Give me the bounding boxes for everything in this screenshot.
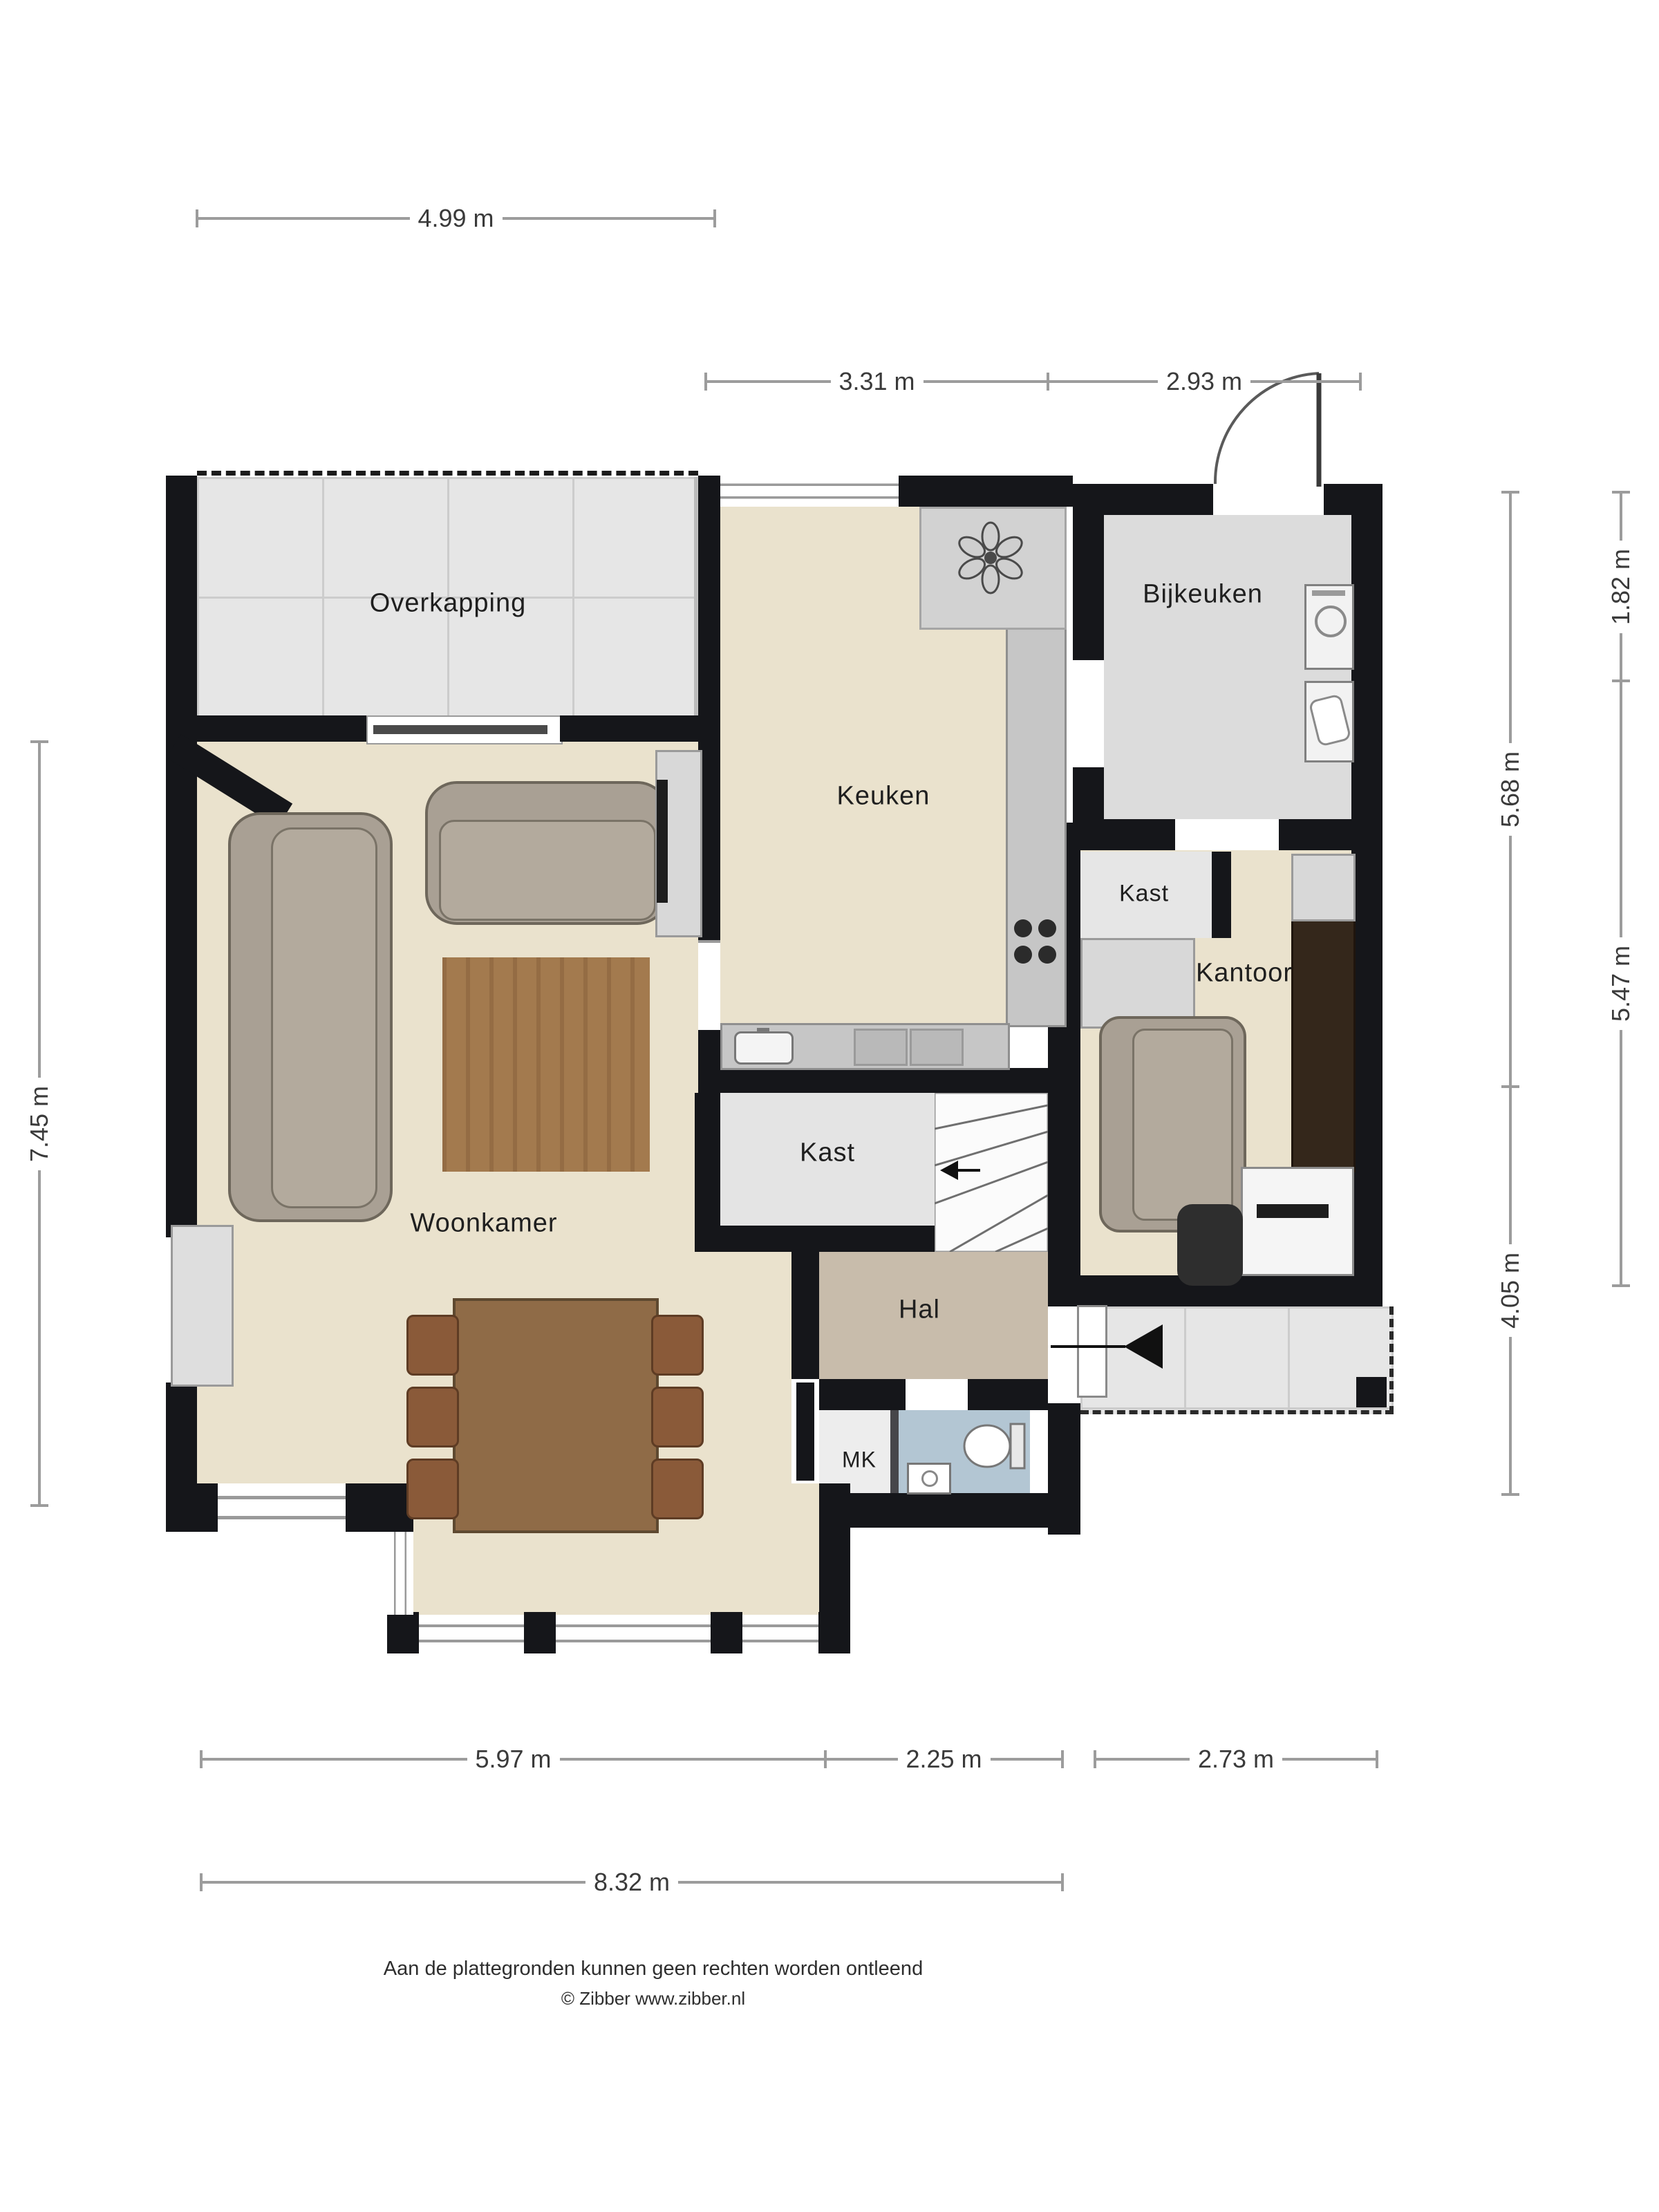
ventilation-fan-icon (953, 520, 1029, 596)
bay-post-1 (387, 1612, 419, 1653)
window-woonkamer-bottom (218, 1483, 346, 1532)
door-opening-keuken-woonkamer (698, 940, 720, 1035)
footer-copyright: © Zibber www.zibber.nl (204, 1988, 1103, 2009)
dimension-right-inner-upper: 5.68 m (1509, 492, 1512, 1087)
room-label-overkapping: Overkapping (370, 589, 526, 619)
dimension-bottom-total: 8.32 m (201, 1881, 1062, 1884)
footer-disclaimer: Aan de plattegronden kunnen geen rechten… (204, 1958, 1103, 1980)
dining-chair-1 (406, 1315, 459, 1376)
wall-keuken-bijkeuken (1073, 484, 1104, 823)
dimension-bijkeuken-width: 2.93 m (1048, 380, 1360, 383)
bay-post-2 (524, 1612, 556, 1653)
door-opening-toilet (906, 1379, 968, 1410)
sliding-door-panel (373, 725, 547, 734)
wall-toilet-bottom (819, 1493, 1048, 1528)
door-leaf-woonkamer-hal (796, 1382, 814, 1481)
radiator (171, 1225, 234, 1387)
toilet-shelf (1030, 1410, 1048, 1493)
bay-window-left-glass (387, 1532, 413, 1615)
door-opening-bijkeuken-kantoor (1175, 819, 1279, 850)
wall-keuken-woonkamer-lower (698, 1030, 720, 1068)
floorplan-page: Overkapping Keuken Bijkeuken Kast Kantoo… (0, 0, 1659, 2212)
room-label-keuken: Keuken (837, 782, 930, 812)
wall-hal-right (1048, 1403, 1080, 1535)
wall-kast-center-top (698, 1068, 1048, 1093)
dimension-right-outer-upper: 1.82 m (1620, 492, 1622, 681)
kitchen-drawer-2 (910, 1029, 964, 1066)
room-label-kast-center: Kast (800, 1138, 855, 1168)
kast-top-cabinet (1080, 938, 1195, 1029)
wall-bottom-left-corner (166, 1483, 218, 1532)
dimension-bottom-middle: 2.25 m (825, 1758, 1062, 1761)
wall-woonkamer-top-right (560, 715, 720, 742)
dimension-left-height: 7.45 m (38, 742, 41, 1506)
bay-post-3 (711, 1612, 742, 1653)
bay-window-band (387, 1615, 850, 1652)
dining-chair-6 (651, 1459, 704, 1519)
rug (442, 957, 650, 1172)
room-label-woonkamer: Woonkamer (410, 1209, 557, 1239)
room-floor-woonkamer-strip (720, 1252, 791, 1483)
dining-table (453, 1298, 659, 1533)
kantoor-sideboard (1291, 854, 1356, 921)
dining-chair-2 (406, 1387, 459, 1447)
dimension-bottom-right: 2.73 m (1095, 1758, 1377, 1761)
overkapping-open-edge (694, 477, 697, 715)
room-label-kast-top: Kast (1119, 881, 1169, 908)
sofa-small (425, 781, 669, 925)
overkapping-dashed-edge (197, 471, 698, 476)
cooktop-icon (1008, 911, 1062, 973)
wall-kast-center-bottom (695, 1226, 950, 1252)
bay-post-4 (818, 1612, 850, 1653)
sliding-door (366, 715, 563, 744)
entrance-arrow-icon (1124, 1324, 1163, 1369)
porch-post (1356, 1377, 1387, 1407)
wall-kast-top-right (1212, 852, 1231, 938)
wall-woonkamer-top-left (197, 715, 366, 742)
sofa-large (228, 812, 393, 1222)
office-chair (1177, 1204, 1243, 1286)
sink-icon (734, 1031, 794, 1065)
washer-icon (1304, 584, 1354, 670)
kitchen-drawer-1 (854, 1029, 908, 1066)
toilet-icon (959, 1418, 1029, 1474)
entrance-arrow-line (1051, 1345, 1125, 1348)
room-label-kantoor: Kantoor (1196, 959, 1293, 988)
hand-basin-icon (907, 1463, 951, 1494)
dimension-top-width: 4.99 m (197, 217, 715, 220)
front-door-leaf (1077, 1305, 1107, 1398)
kantoor-sofa (1099, 1016, 1246, 1232)
dining-chair-4 (651, 1315, 704, 1376)
room-label-hal: Hal (899, 1295, 940, 1325)
monitor-icon (1257, 1204, 1329, 1218)
wall-right-exterior (1351, 484, 1382, 1306)
room-label-bijkeuken: Bijkeuken (1143, 580, 1263, 610)
kantoor-cabinet (1291, 919, 1356, 1172)
dimension-bottom-left: 5.97 m (201, 1758, 825, 1761)
dining-chair-5 (651, 1387, 704, 1447)
dimension-right-inner-lower: 4.05 m (1509, 1087, 1512, 1494)
stairs-icon (935, 1093, 1048, 1252)
wall-mk-toilet-divider (890, 1410, 899, 1493)
dimension-keuken-width: 3.31 m (706, 380, 1048, 383)
tv-icon (657, 780, 668, 903)
door-opening-keuken-bijkeuken (1073, 660, 1104, 767)
laundry-sink-icon (1304, 681, 1354, 762)
wall-hal-left (791, 1252, 819, 1379)
desk (1241, 1167, 1354, 1276)
room-label-mk: MK (842, 1447, 877, 1473)
dining-chair-3 (406, 1459, 459, 1519)
window-keuken-top (720, 476, 899, 507)
wall-bottom-mid (346, 1483, 387, 1532)
dimension-right-outer-lower: 5.47 m (1620, 681, 1622, 1286)
